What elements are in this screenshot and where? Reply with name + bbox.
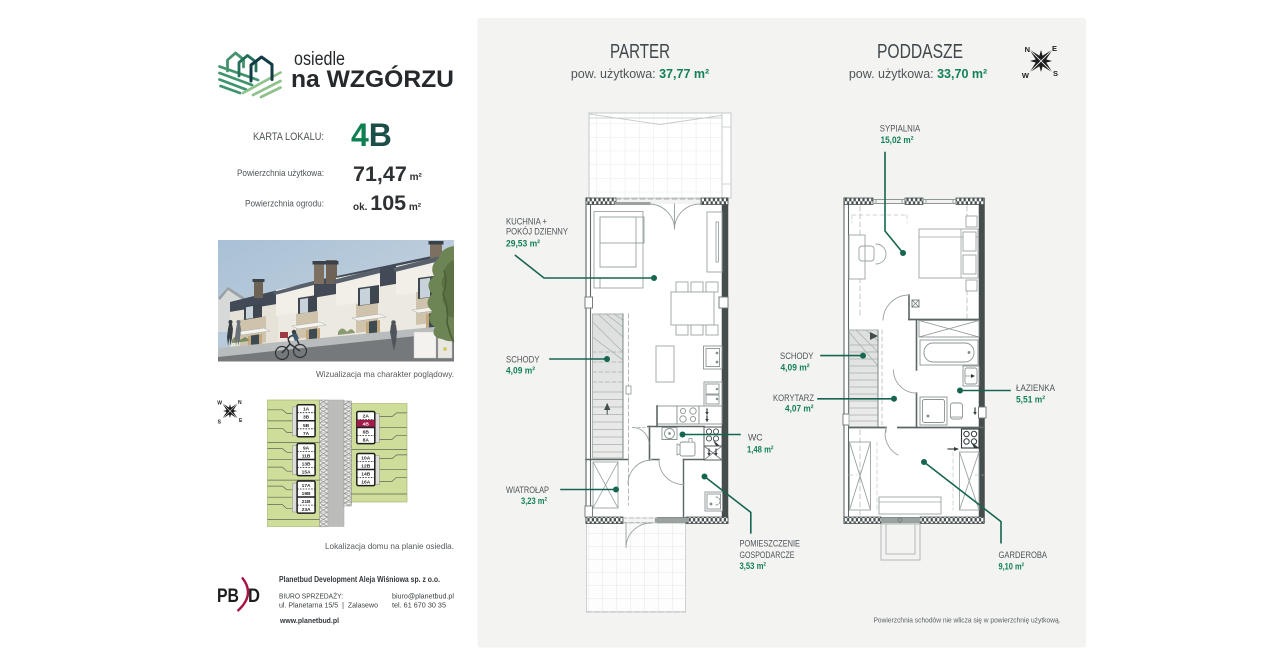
- svg-text:Powierzchnia schodów nie wlicz: Powierzchnia schodów nie wlicza się w po…: [874, 616, 1061, 625]
- svg-text:11B: 11B: [302, 454, 311, 460]
- svg-text:4,07 m²: 4,07 m²: [785, 404, 814, 414]
- svg-text:1,48 m²: 1,48 m²: [747, 445, 774, 455]
- svg-text:6B: 6B: [363, 430, 370, 436]
- svg-text:na WZGÓRZU: na WZGÓRZU: [291, 65, 454, 93]
- svg-text:N: N: [238, 400, 242, 406]
- svg-text:ŁAZIENKA: ŁAZIENKA: [1016, 383, 1055, 393]
- svg-text:7A: 7A: [303, 431, 310, 437]
- svg-text:www.planetbud.pl: www.planetbud.pl: [279, 616, 339, 625]
- svg-text:tel. 61 670 30 35: tel. 61 670 30 35: [392, 601, 446, 610]
- svg-text:3,23 m²: 3,23 m²: [521, 496, 547, 506]
- svg-text:1A: 1A: [303, 407, 310, 413]
- svg-text:13B: 13B: [302, 462, 311, 468]
- svg-text:pow. użytkowa: 33,70 m²: pow. użytkowa: 33,70 m²: [849, 67, 987, 81]
- svg-text:GARDEROBA: GARDEROBA: [999, 550, 1048, 560]
- svg-text:21B: 21B: [302, 499, 311, 505]
- svg-text:3B: 3B: [303, 415, 310, 421]
- svg-text:N: N: [1025, 45, 1030, 54]
- svg-text:5,51 m²: 5,51 m²: [1016, 395, 1045, 405]
- svg-text:4B: 4B: [363, 422, 370, 428]
- svg-text:15,02 m²: 15,02 m²: [881, 135, 914, 145]
- svg-text:SCHODY: SCHODY: [780, 351, 814, 361]
- svg-text:WIATROŁAP: WIATROŁAP: [506, 485, 549, 495]
- svg-text:71,47 m²: 71,47 m²: [353, 162, 422, 186]
- svg-text:S: S: [1053, 69, 1058, 78]
- svg-text:3,53 m²: 3,53 m²: [740, 561, 767, 571]
- svg-text:10A: 10A: [361, 456, 370, 462]
- svg-text:KARTA LOKALU:: KARTA LOKALU:: [253, 131, 324, 143]
- svg-text:Wizualizacja ma charakter pogl: Wizualizacja ma charakter poglądowy.: [316, 369, 454, 379]
- svg-text:Powierzchnia ogrodu:: Powierzchnia ogrodu:: [245, 199, 324, 210]
- svg-text:14B: 14B: [361, 472, 370, 478]
- svg-text:GOSPODARCZE: GOSPODARCZE: [740, 550, 795, 560]
- svg-text:9,10 m²: 9,10 m²: [999, 562, 1025, 572]
- svg-text:SYPIALNIA: SYPIALNIA: [880, 124, 921, 134]
- svg-text:4,09 m²: 4,09 m²: [506, 366, 535, 376]
- svg-text:8A: 8A: [363, 438, 370, 444]
- svg-text:POMIESZCZENIE: POMIESZCZENIE: [740, 539, 801, 549]
- svg-text:16A: 16A: [361, 480, 370, 486]
- svg-text:BIURO SPRZEDAŻY:: BIURO SPRZEDAŻY:: [279, 592, 343, 601]
- svg-text:Powierzchnia użytkowa:: Powierzchnia użytkowa:: [237, 168, 324, 179]
- svg-text:15A: 15A: [302, 470, 311, 476]
- svg-text:ul. Planetarna 15/5 | Zalase: ul. Planetarna 15/5 | Zalasewo: [279, 601, 378, 610]
- svg-text:W: W: [1022, 71, 1030, 80]
- svg-text:17A: 17A: [302, 483, 311, 489]
- svg-text:E: E: [239, 418, 243, 424]
- svg-text:4,09 m²: 4,09 m²: [781, 363, 810, 373]
- svg-text:pow. użytkowa: 37,77 m²: pow. użytkowa: 37,77 m²: [571, 67, 709, 81]
- svg-text:12B: 12B: [361, 464, 370, 470]
- svg-text:PODDASZE: PODDASZE: [877, 41, 963, 63]
- svg-text:19B: 19B: [302, 491, 311, 497]
- svg-text:2A: 2A: [363, 414, 370, 420]
- svg-text:9A: 9A: [303, 446, 310, 452]
- svg-text:KORYTARZ: KORYTARZ: [773, 393, 815, 403]
- svg-text:29,53 m²: 29,53 m²: [506, 239, 540, 249]
- svg-text:Planetbud Development Aleja Wi: Planetbud Development Aleja Wiśniowa sp.…: [279, 575, 440, 584]
- svg-text:5B: 5B: [303, 423, 310, 429]
- svg-text:PB: PB: [217, 585, 239, 607]
- svg-text:Lokalizacja domu na planie osi: Lokalizacja domu na planie osiedla.: [325, 541, 454, 551]
- svg-text:biuro@planetbud.pl: biuro@planetbud.pl: [392, 592, 454, 601]
- svg-text:23A: 23A: [302, 507, 311, 513]
- svg-text:4B: 4B: [351, 117, 392, 153]
- svg-text:WC: WC: [748, 433, 763, 443]
- svg-text:ok. 105 m²: ok. 105 m²: [353, 191, 422, 215]
- svg-text:W: W: [217, 401, 222, 407]
- svg-text:E: E: [1052, 44, 1057, 53]
- svg-text:PARTER: PARTER: [610, 41, 670, 63]
- svg-text:KUCHNIA +: KUCHNIA +: [506, 217, 547, 227]
- svg-text:D: D: [248, 585, 260, 607]
- svg-text:POKÓJ DZIENNY: POKÓJ DZIENNY: [506, 227, 568, 237]
- svg-text:S: S: [218, 420, 222, 426]
- svg-text:SCHODY: SCHODY: [506, 355, 540, 365]
